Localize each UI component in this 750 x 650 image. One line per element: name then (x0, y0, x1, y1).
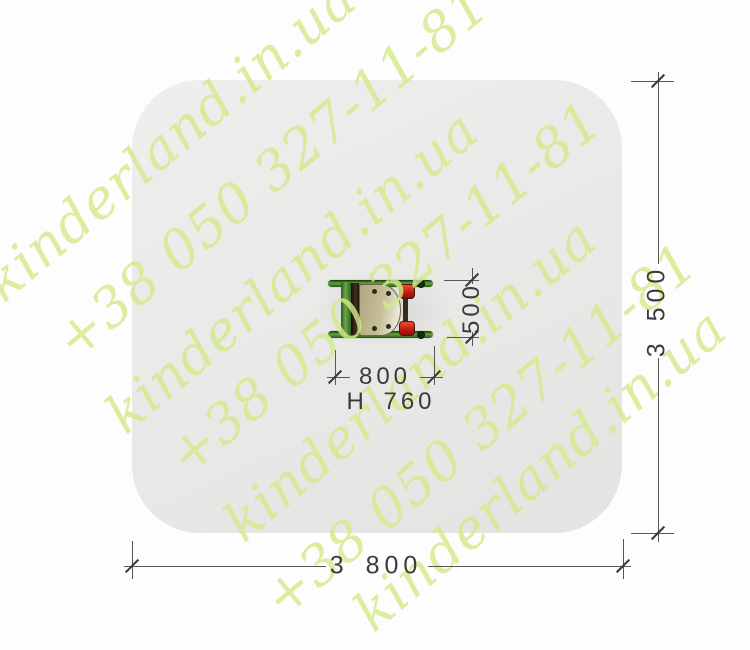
zone-depth-label: 3 500 (645, 265, 670, 358)
equipment-height-label: H 760 (346, 390, 435, 414)
extension-line (631, 81, 674, 82)
dimension-line-segment (428, 566, 631, 567)
extension-line (335, 350, 336, 385)
handle-grip-bottom (399, 321, 415, 336)
dimension-line-segment (658, 72, 659, 264)
equipment-width-label: 800 (359, 365, 411, 389)
extension-line (434, 346, 435, 385)
drawing-canvas: kinderland.in.ua +38 050 327-11-81 kinde… (0, 0, 750, 650)
dimension-line-segment (124, 566, 326, 567)
extension-line (444, 280, 479, 281)
dimension-line-segment (327, 377, 350, 378)
extension-line (623, 539, 624, 579)
dimension-line-segment (658, 358, 659, 542)
zone-width-label: 3 800 (330, 554, 423, 579)
extension-line (132, 541, 133, 579)
extension-line (631, 533, 674, 534)
equipment-depth-label: 500 (460, 282, 484, 334)
extension-line (447, 337, 479, 338)
